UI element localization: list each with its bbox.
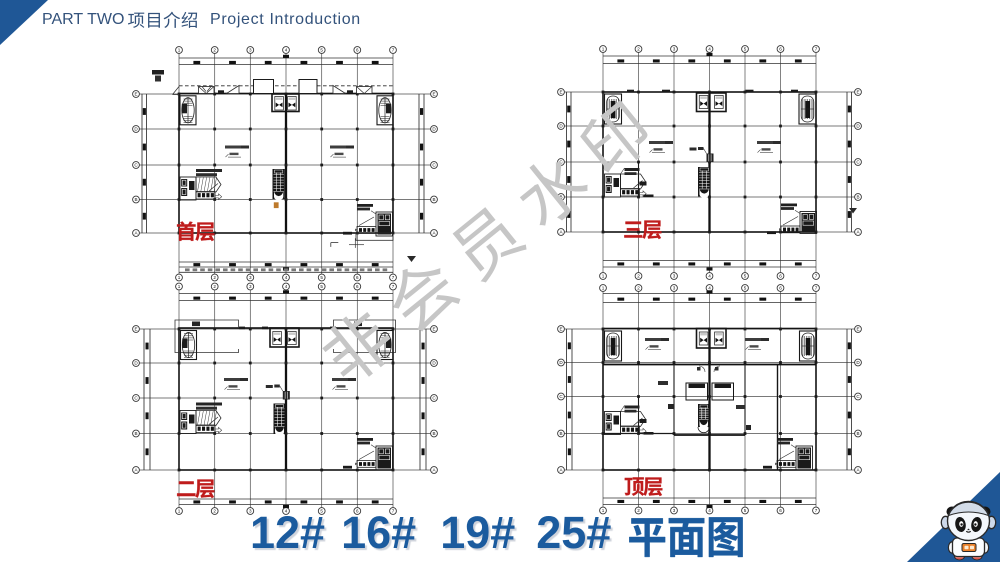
svg-text:4: 4 xyxy=(708,286,711,291)
svg-text:B: B xyxy=(559,431,562,436)
svg-text:7: 7 xyxy=(815,274,818,279)
svg-text:3: 3 xyxy=(249,284,252,289)
svg-text:B: B xyxy=(134,431,137,436)
svg-text:2: 2 xyxy=(637,47,640,52)
svg-text:1: 1 xyxy=(178,48,181,53)
svg-text:4: 4 xyxy=(285,284,288,289)
svg-text:6: 6 xyxy=(356,48,359,53)
svg-text:1: 1 xyxy=(178,284,181,289)
svg-text:2: 2 xyxy=(213,48,216,53)
svg-text:2: 2 xyxy=(637,508,640,513)
svg-text:3: 3 xyxy=(673,508,676,513)
svg-text:5: 5 xyxy=(744,286,747,291)
svg-text:4: 4 xyxy=(708,508,711,513)
svg-text:6: 6 xyxy=(779,47,782,52)
svg-text:6: 6 xyxy=(356,275,359,280)
svg-text:4: 4 xyxy=(285,275,288,280)
svg-text:E: E xyxy=(856,327,859,332)
svg-text:5: 5 xyxy=(320,275,323,280)
svg-text:4: 4 xyxy=(285,48,288,53)
svg-text:B: B xyxy=(856,431,859,436)
svg-text:7: 7 xyxy=(392,275,395,280)
svg-text:2: 2 xyxy=(637,274,640,279)
svg-text:3: 3 xyxy=(673,286,676,291)
svg-text:6: 6 xyxy=(779,286,782,291)
svg-text:E: E xyxy=(134,92,137,97)
svg-text:3: 3 xyxy=(249,48,252,53)
svg-text:7: 7 xyxy=(392,48,395,53)
svg-text:E: E xyxy=(134,327,137,332)
svg-text:7: 7 xyxy=(392,284,395,289)
svg-text:1: 1 xyxy=(602,47,605,52)
svg-text:1: 1 xyxy=(602,286,605,291)
svg-text:1: 1 xyxy=(178,509,181,514)
svg-text:E: E xyxy=(559,327,562,332)
svg-text:E: E xyxy=(856,90,859,95)
svg-text:3: 3 xyxy=(673,274,676,279)
svg-text:5: 5 xyxy=(744,274,747,279)
svg-text:B: B xyxy=(856,195,859,200)
svg-text:2: 2 xyxy=(213,509,216,514)
svg-text:B: B xyxy=(134,197,137,202)
svg-text:5: 5 xyxy=(744,47,747,52)
svg-text:E: E xyxy=(432,92,435,97)
svg-text:E: E xyxy=(559,90,562,95)
svg-text:B: B xyxy=(559,195,562,200)
svg-text:4: 4 xyxy=(708,47,711,52)
svg-text:5: 5 xyxy=(744,508,747,513)
svg-text:5: 5 xyxy=(320,284,323,289)
svg-text:7: 7 xyxy=(815,286,818,291)
svg-text:7: 7 xyxy=(815,47,818,52)
svg-text:E: E xyxy=(432,327,435,332)
svg-text:3: 3 xyxy=(673,47,676,52)
svg-text:1: 1 xyxy=(178,275,181,280)
svg-text:1: 1 xyxy=(602,274,605,279)
svg-text:6: 6 xyxy=(779,508,782,513)
svg-text:6: 6 xyxy=(779,274,782,279)
svg-text:6: 6 xyxy=(356,284,359,289)
svg-text:2: 2 xyxy=(213,275,216,280)
svg-text:3: 3 xyxy=(249,275,252,280)
svg-text:B: B xyxy=(432,197,435,202)
svg-text:4: 4 xyxy=(708,274,711,279)
svg-text:2: 2 xyxy=(637,286,640,291)
svg-text:7: 7 xyxy=(815,508,818,513)
svg-text:2: 2 xyxy=(213,284,216,289)
svg-text:B: B xyxy=(432,431,435,436)
svg-text:5: 5 xyxy=(320,48,323,53)
